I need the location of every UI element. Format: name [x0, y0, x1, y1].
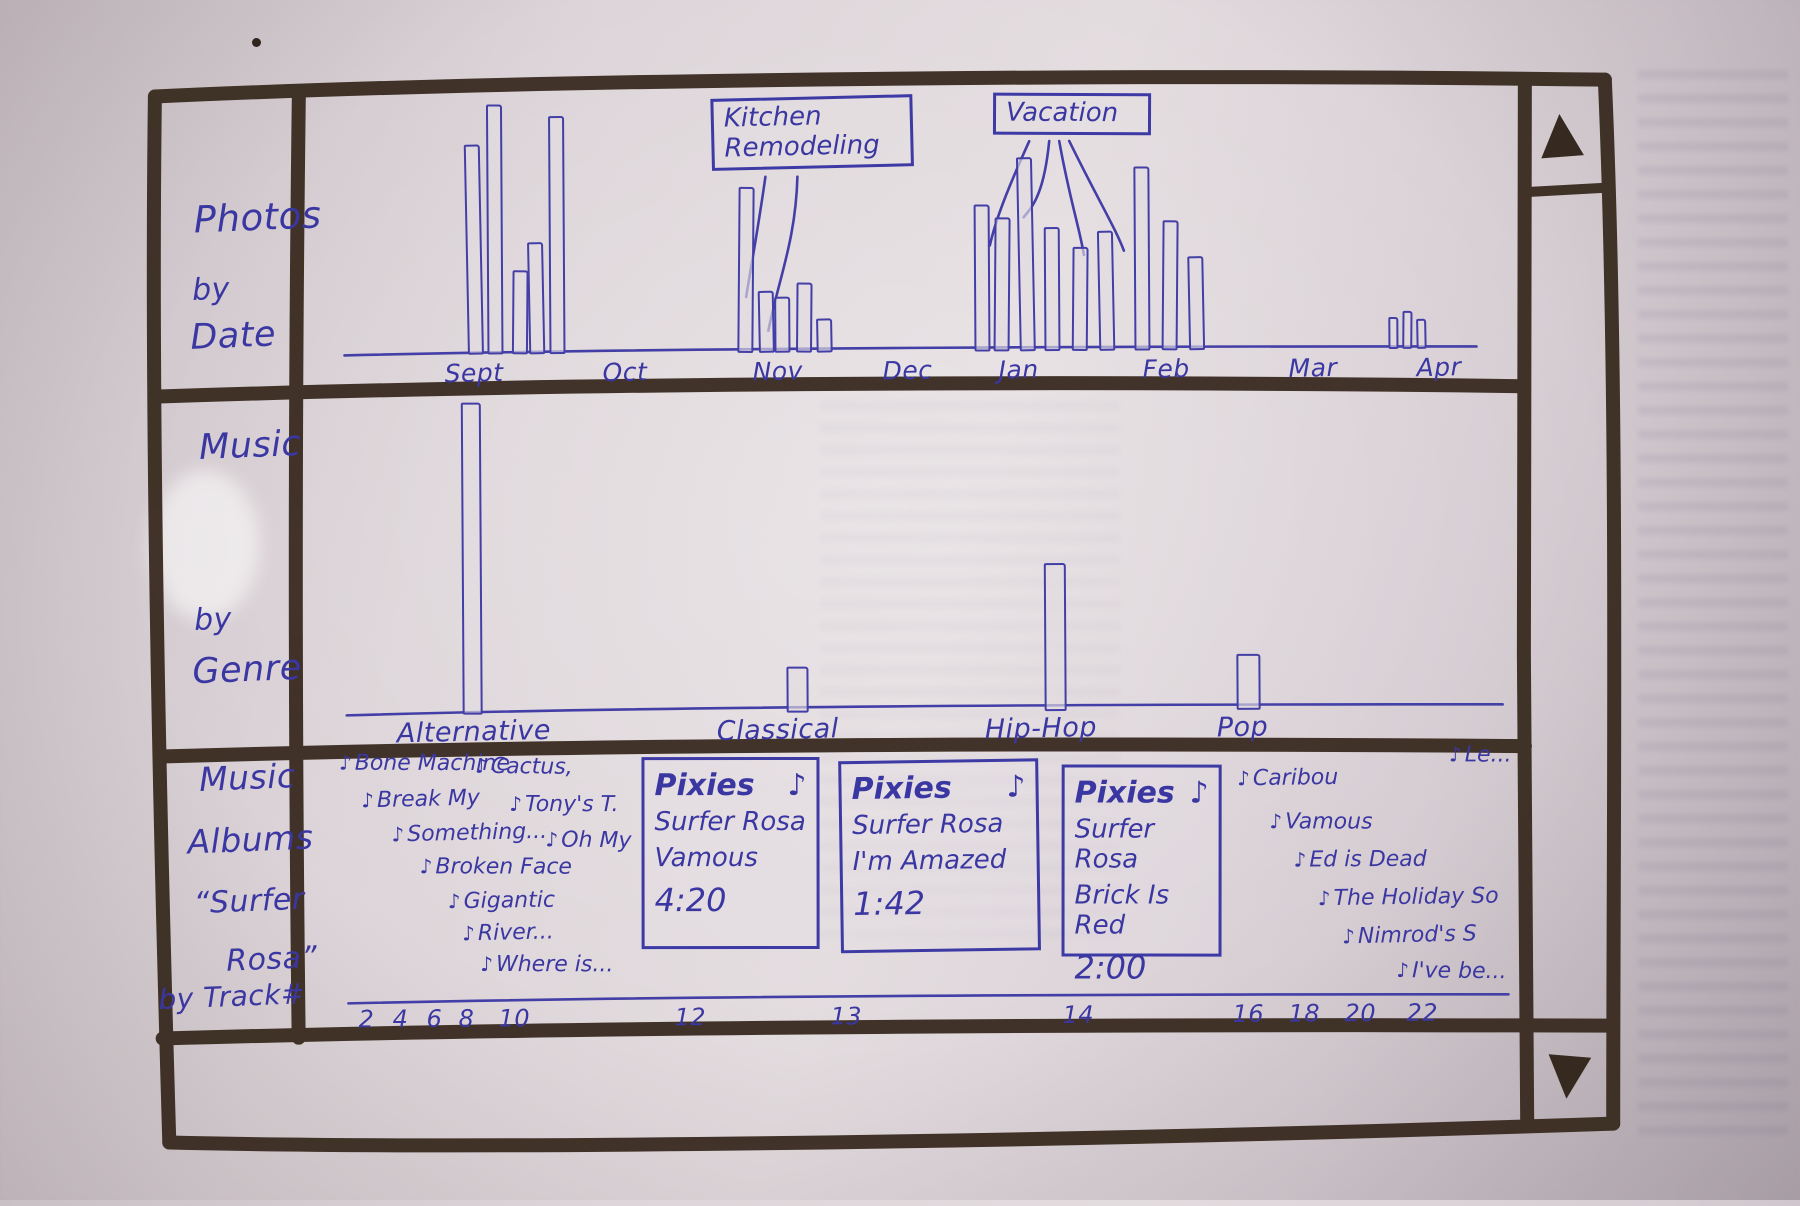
card-time: 1:42	[853, 882, 1028, 923]
track-number-6: 6	[426, 1005, 442, 1033]
music-note-icon: ♪	[1189, 776, 1208, 811]
track-number-4: 4	[392, 1005, 408, 1033]
month-label-apr: Apr	[1416, 352, 1461, 382]
photo-bar[interactable]	[1388, 317, 1398, 349]
track-number-14: 14	[1062, 1001, 1094, 1029]
track-item-label: Oh My	[561, 828, 632, 854]
vacation-leader-3	[1059, 141, 1084, 255]
track-item-label: Broken Face	[435, 854, 572, 879]
photo-bar[interactable]	[1187, 256, 1205, 350]
track-item[interactable]: ♪Nimrod's S	[1342, 921, 1477, 949]
card-track: I'm Amazed	[852, 844, 1026, 877]
music-note-icon: ♪	[475, 754, 488, 778]
photo-bar[interactable]	[1162, 220, 1179, 350]
genre-row-title-2: by	[193, 601, 232, 638]
track-item[interactable]: ♪Broken Face	[420, 854, 572, 879]
genre-bar-pop[interactable]	[1236, 654, 1260, 710]
photo-bar[interactable]	[527, 242, 545, 354]
track-item[interactable]: ♪Something...	[391, 819, 547, 848]
month-label-feb: Feb	[1142, 354, 1190, 384]
tracknum-axis	[348, 992, 1508, 1003]
music-note-icon: ♪	[1342, 924, 1355, 948]
track-item[interactable]: ♪The Holiday So	[1318, 884, 1499, 912]
genre-label-hip-hop: Hip-Hop	[984, 712, 1097, 746]
track-number-16: 16	[1232, 1000, 1264, 1028]
track-number-22: 22	[1406, 999, 1438, 1027]
music-note-icon: ♪	[787, 768, 806, 803]
scroll-up-icon[interactable]: ▲	[1537, 102, 1584, 161]
card-track: Vamous	[655, 843, 807, 873]
photo-bar[interactable]	[774, 297, 790, 353]
music-note-icon: ♪	[1294, 848, 1307, 872]
card-album: Surfer Rosa	[655, 807, 807, 837]
track-item-label: I've be...	[1412, 958, 1507, 984]
track-item[interactable]: ♪Caribou	[1237, 765, 1339, 791]
music-note-icon: ♪	[361, 788, 374, 812]
genre-label-pop: Pop	[1216, 711, 1268, 743]
track-number-2: 2	[358, 1005, 374, 1033]
track-item-label: Break My	[377, 786, 480, 813]
photo-bar[interactable]	[816, 318, 833, 352]
albums-row-title-2: Albums	[187, 817, 314, 861]
photo-bar[interactable]	[486, 104, 504, 354]
track-number-18: 18	[1288, 999, 1320, 1027]
month-label-mar: Mar	[1288, 353, 1337, 383]
photos-row-title-2: by	[191, 271, 230, 308]
music-note-icon: ♪	[1396, 958, 1409, 982]
month-label-sept: Sept	[444, 358, 504, 388]
music-note-icon: ♪	[1006, 769, 1026, 804]
music-note-icon: ♪	[420, 854, 433, 878]
music-note-icon: ♪	[1269, 809, 1282, 833]
photo-bar[interactable]	[1402, 311, 1412, 349]
photo-bar[interactable]	[1072, 247, 1089, 351]
frame-bottom	[169, 1124, 1613, 1148]
callout-vacation[interactable]: Vacation	[993, 93, 1151, 136]
music-note-icon: ♪	[448, 889, 461, 913]
track-item-label: Nimrod's S	[1358, 921, 1477, 949]
photo-bar[interactable]	[1097, 231, 1115, 351]
card-time: 2:00	[1074, 948, 1208, 986]
track-item-label: Cactus,	[491, 754, 573, 780]
frame-top	[155, 74, 1605, 96]
track-number-12: 12	[674, 1003, 706, 1031]
track-item-label: Ed is Dead	[1309, 847, 1427, 873]
card-track: Brick Is Red	[1075, 880, 1209, 940]
albums-row-title-1: Music	[198, 756, 296, 799]
ui-sketch: Photos by Date Music by Genre Music Albu…	[0, 0, 1800, 1205]
genre-axis	[347, 703, 1503, 716]
music-note-icon: ♪	[1318, 886, 1331, 910]
photo-bar[interactable]	[512, 270, 529, 354]
genre-label-classical: Classical	[716, 713, 839, 747]
photo-bar[interactable]	[737, 187, 754, 353]
album-card-brick-is-red[interactable]: Pixies ♪ Surfer Rosa Brick Is Red 2:00	[1062, 764, 1222, 956]
track-number-8: 8	[458, 1005, 474, 1033]
track-number-20: 20	[1344, 999, 1376, 1027]
photo-bar[interactable]	[994, 217, 1011, 351]
row-divider-3	[163, 1022, 1611, 1038]
music-note-icon: ♪	[462, 921, 475, 945]
month-label-dec: Dec	[882, 355, 933, 385]
month-label-oct: Oct	[602, 357, 647, 387]
albums-row-title-3: “Surfer	[193, 882, 305, 922]
track-item[interactable]: ♪Oh My	[545, 827, 631, 853]
genre-bar-hip-hop[interactable]	[1044, 563, 1067, 711]
month-label-nov: Nov	[752, 356, 803, 386]
track-item[interactable]: ♪Cactus,	[475, 754, 573, 780]
genre-row-title-1: Music	[198, 424, 302, 468]
music-note-icon: ♪	[545, 827, 558, 851]
scrollbar-track[interactable]: ▲ ▼	[1525, 82, 1615, 1126]
track-item[interactable]: ♪Vamous	[1269, 809, 1372, 834]
track-item[interactable]: ♪River...	[462, 919, 554, 946]
genre-row-title-3: Genre	[192, 648, 303, 692]
genre-label-alternative: Alternative	[396, 715, 551, 750]
photos-row-title-3: Date	[190, 314, 277, 357]
photo-bar[interactable]	[548, 116, 565, 354]
track-item-label: Gigantic	[463, 888, 555, 914]
track-item[interactable]: ♪Where is...	[480, 952, 613, 977]
music-note-icon: ♪	[1237, 766, 1250, 790]
photo-bar[interactable]	[1133, 166, 1150, 350]
photos-row-title-1: Photos	[193, 193, 322, 241]
track-item[interactable]: ♪Break My	[361, 786, 480, 814]
card-artist: Pixies	[851, 771, 952, 807]
genre-bar-alternative[interactable]	[461, 403, 483, 715]
track-item[interactable]: ♪Le...	[1449, 742, 1512, 767]
album-card-vamous[interactable]: Pixies ♪ Surfer Rosa Vamous 4:20	[641, 757, 819, 949]
card-time: 4:20	[655, 881, 807, 919]
photo-bar[interactable]	[1416, 319, 1427, 349]
track-item-label: River...	[478, 919, 555, 946]
track-number-13: 13	[830, 1002, 862, 1030]
card-album: Surfer Rosa	[1075, 814, 1209, 874]
track-item[interactable]: ♪Gigantic	[448, 888, 556, 915]
track-item-label: Where is...	[496, 952, 613, 977]
album-card-im-amazed[interactable]: Pixies ♪ Surfer Rosa I'm Amazed 1:42	[838, 758, 1041, 953]
callout-kitchen-remodeling[interactable]: Kitchen Remodeling	[710, 94, 914, 171]
track-item-label: Tony's T.	[525, 792, 619, 817]
track-item-label: Le...	[1465, 742, 1512, 767]
track-item-label: Something...	[407, 819, 548, 847]
track-item-label: Vamous	[1285, 809, 1372, 834]
albums-row-title-5: by Track#	[158, 977, 306, 1016]
track-item[interactable]: ♪Tony's T.	[509, 792, 618, 817]
track-item[interactable]: ♪Ed is Dead	[1294, 847, 1427, 873]
music-note-icon: ♪	[391, 822, 404, 846]
track-number-10: 10	[498, 1004, 530, 1032]
track-item-label: The Holiday So	[1333, 884, 1498, 911]
genre-bar-classical[interactable]	[786, 667, 808, 713]
scroll-down-icon[interactable]: ▼	[1545, 1044, 1592, 1103]
photo-bar[interactable]	[758, 291, 775, 353]
photo-bar[interactable]	[1044, 227, 1061, 351]
card-artist: Pixies	[654, 768, 754, 803]
music-note-icon: ♪	[509, 792, 522, 816]
card-artist: Pixies	[1075, 775, 1175, 810]
photo-bar[interactable]	[974, 204, 991, 351]
track-item-label: Caribou	[1253, 765, 1339, 791]
photo-bar[interactable]	[796, 283, 813, 353]
track-item[interactable]: ♪I've be...	[1396, 958, 1507, 984]
music-note-icon: ♪	[480, 952, 493, 976]
music-note-icon: ♪	[1449, 742, 1462, 766]
card-album: Surfer Rosa	[852, 808, 1026, 841]
music-note-icon: ♪	[339, 751, 352, 775]
albums-row-title-4: Rosa”	[226, 940, 319, 979]
month-label-jan: Jan	[998, 355, 1039, 385]
